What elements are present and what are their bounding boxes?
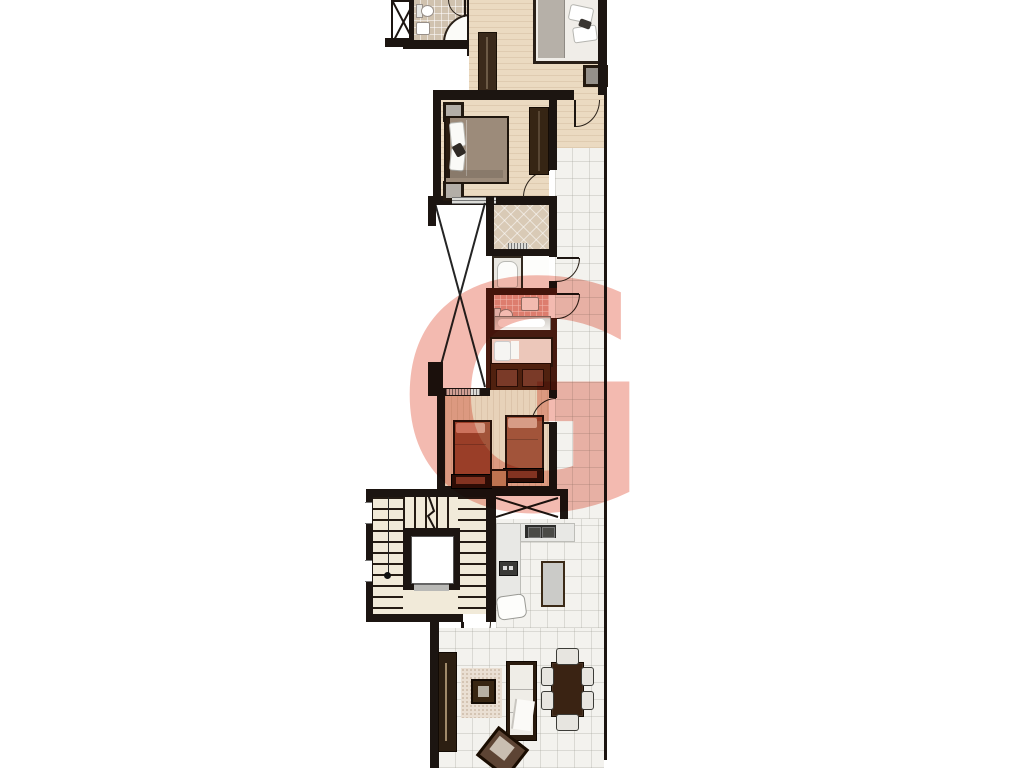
wardrobe <box>478 32 497 94</box>
dining-chair <box>541 667 554 686</box>
floor-plan: G <box>0 0 1024 768</box>
dining-chair <box>541 691 554 710</box>
tv-unit <box>438 652 457 752</box>
wardrobe <box>529 107 549 175</box>
door-leaf <box>464 0 466 16</box>
elevator-door-sill <box>414 583 449 591</box>
stair-walk-line <box>388 497 389 575</box>
double-bed <box>444 116 509 184</box>
wall <box>549 94 557 170</box>
dining-chair <box>581 691 594 710</box>
wall <box>366 614 463 622</box>
wall <box>598 0 607 95</box>
toilet-bowl-icon <box>421 5 434 17</box>
dining-chair <box>556 648 579 665</box>
double-bed <box>533 0 603 64</box>
dining-chair <box>556 714 579 731</box>
sink-icon <box>416 22 430 35</box>
stair-start-dot <box>384 572 391 579</box>
sofa <box>506 661 537 741</box>
dining-chair <box>581 667 594 686</box>
window <box>365 560 372 582</box>
kitchen-sink-icon <box>495 593 527 621</box>
coffee-table <box>471 679 496 704</box>
wall <box>403 40 473 49</box>
dining-table <box>551 662 584 717</box>
watermark-letter: G <box>394 244 653 559</box>
throw-blanket <box>511 699 535 731</box>
bed-blanket <box>538 0 565 58</box>
window <box>365 502 372 524</box>
wall <box>433 90 441 205</box>
